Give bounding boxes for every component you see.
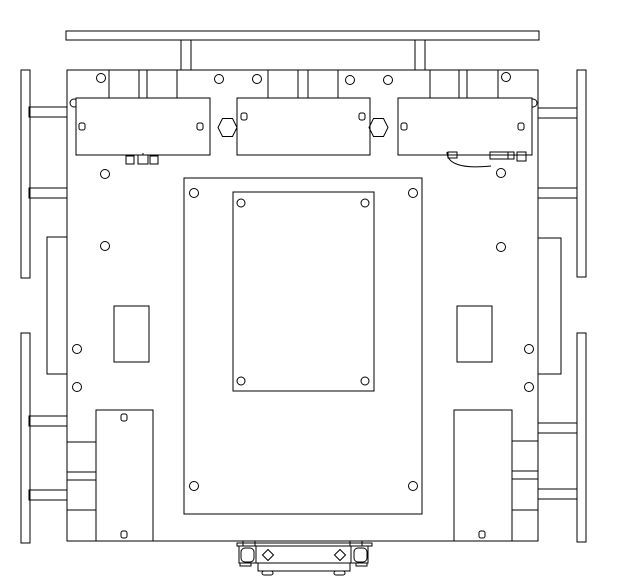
caster-side-tab: [356, 563, 367, 566]
wheel-rail-right-rear: [577, 333, 586, 542]
wheel-rail-left-rear: [21, 333, 30, 543]
mount-arm-right-4: [538, 489, 577, 499]
caster-side-tab: [240, 563, 251, 566]
caster-foot: [334, 571, 345, 575]
cad-drawing-stage: [0, 0, 618, 579]
caster-bushing-right: [354, 548, 367, 562]
mount-arm-right-2: [538, 188, 577, 198]
side-pocket-left: [47, 237, 67, 374]
caster-diamond-hole-right: [335, 550, 346, 561]
wheel-rail-left-front: [21, 70, 30, 278]
caster-diamond-hole-left: [263, 550, 274, 561]
module-center: [237, 98, 370, 155]
bumper-post-left: [181, 40, 191, 70]
module-right: [398, 98, 532, 155]
caster-foot: [262, 571, 273, 575]
caster-bushing-left: [241, 548, 254, 562]
mount-arm-left-4: [29, 490, 67, 500]
mount-arm-right-1: [538, 108, 577, 118]
module-left: [76, 98, 210, 155]
caster-lower-bar: [258, 563, 350, 571]
side-pocket-right: [538, 238, 561, 374]
top-bumper-bar: [66, 31, 539, 40]
mount-arm-left-2: [29, 188, 67, 198]
chassis-top-view-drawing: [0, 0, 618, 579]
mount-arm-left-1: [29, 107, 67, 117]
caster-body: [239, 546, 368, 563]
wheel-rail-right-front: [577, 70, 586, 277]
mount-arm-right-3: [538, 423, 577, 433]
bumper-post-right: [415, 40, 425, 70]
mount-arm-left-3: [29, 416, 67, 426]
